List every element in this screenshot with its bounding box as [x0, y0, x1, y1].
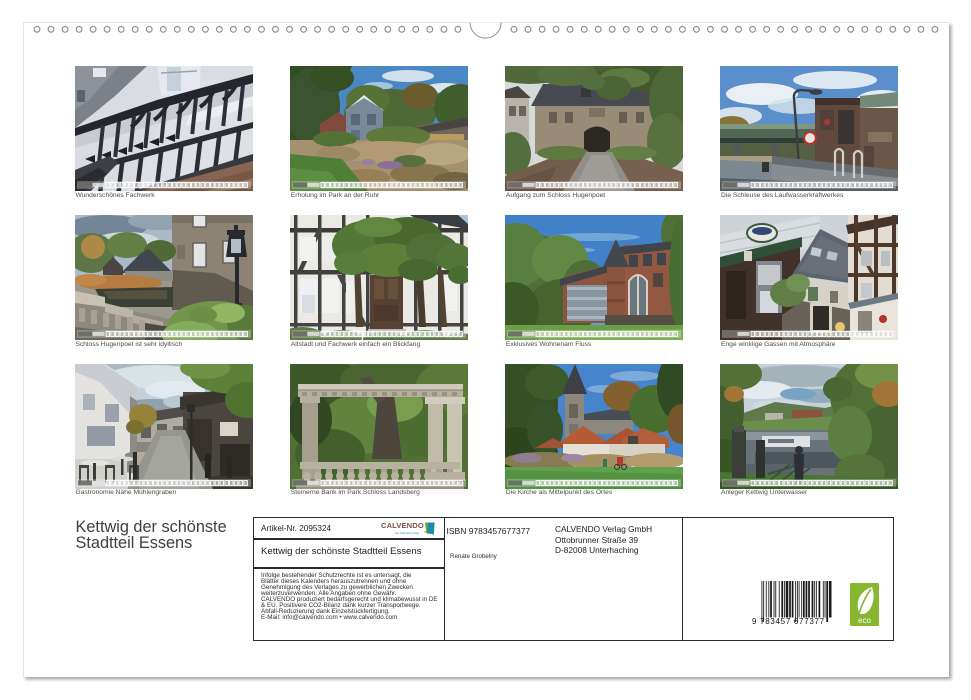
svg-text:eco: eco: [858, 616, 871, 625]
